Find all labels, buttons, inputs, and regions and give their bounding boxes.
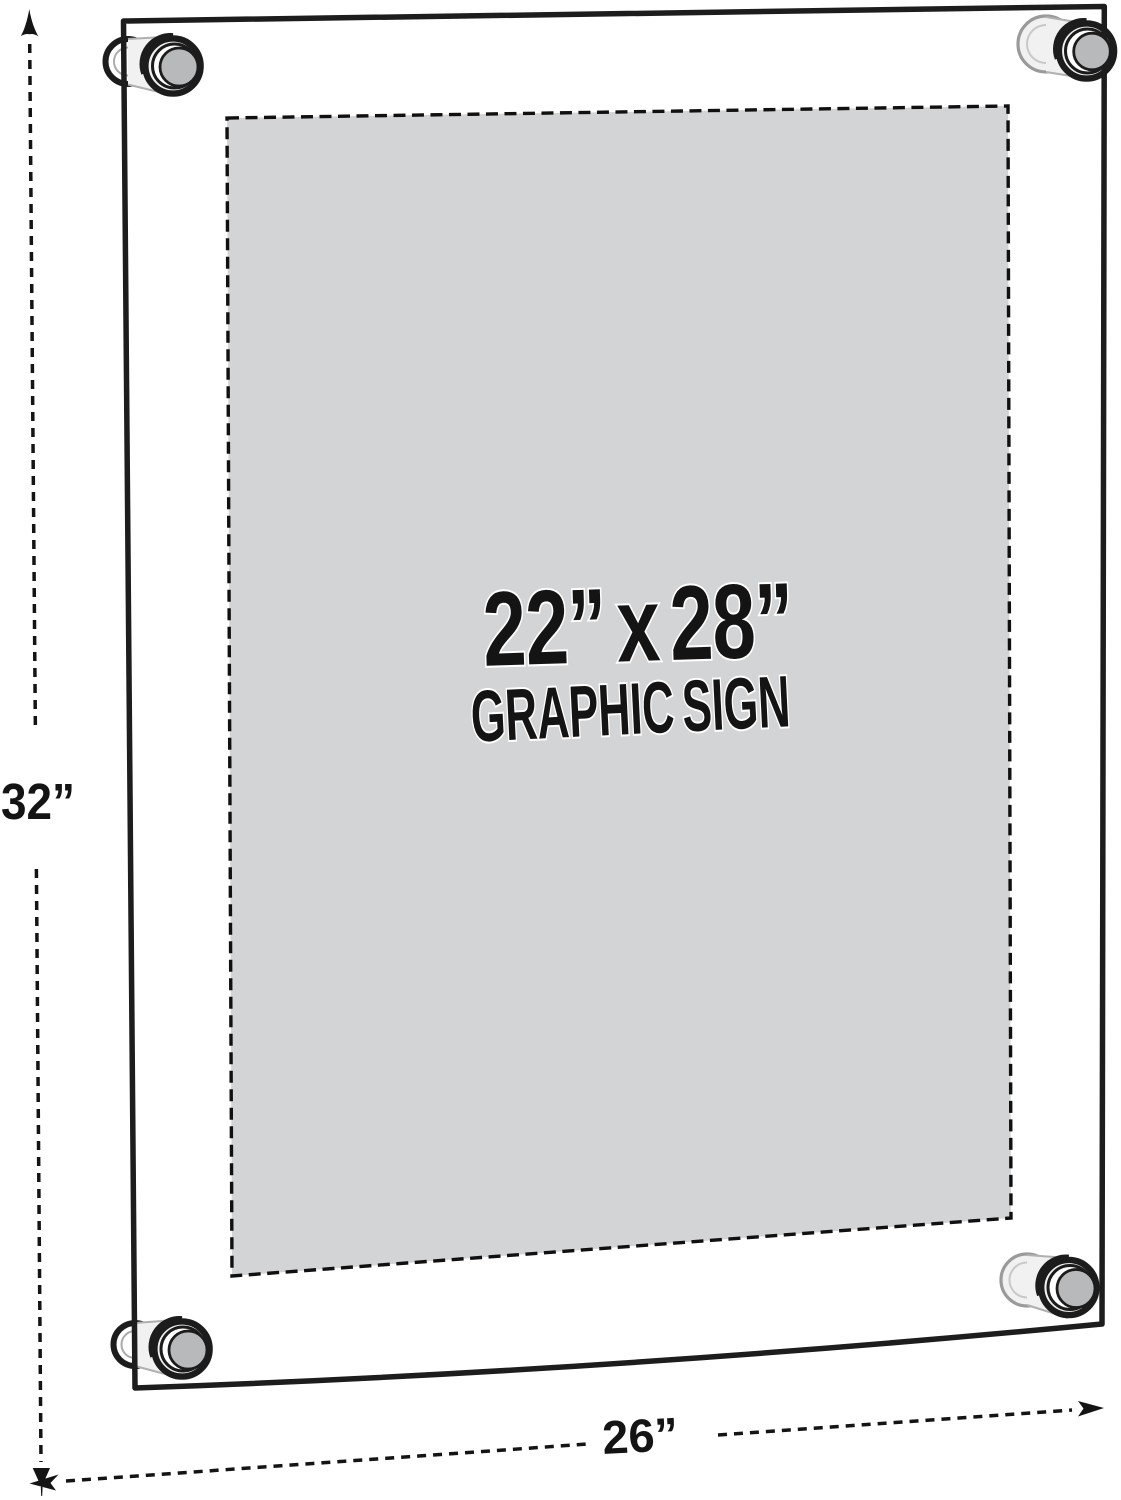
svg-text:32”: 32” — [1, 774, 75, 831]
svg-text:GRAPHIC SIGN: GRAPHIC SIGN — [469, 660, 792, 758]
svg-text:26”: 26” — [601, 1407, 679, 1464]
